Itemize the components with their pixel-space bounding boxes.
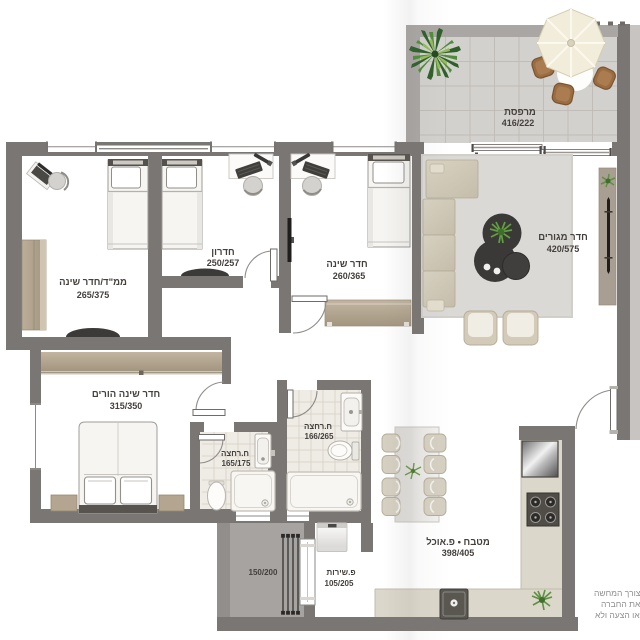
svg-text:150/200: 150/200 [249,568,278,577]
svg-text:315/350: 315/350 [110,401,143,411]
svg-text:ממ"ד/חדר שינה: ממ"ד/חדר שינה [59,277,127,288]
svg-text:105/205: 105/205 [325,579,354,588]
svg-text:צורך המחשה: צורך המחשה [594,588,640,598]
svg-text:ח.רחצה: ח.רחצה [304,422,332,431]
svg-text:166/265: 166/265 [305,432,334,441]
svg-text:416/222: 416/222 [502,118,535,128]
svg-text:חדרון: חדרון [211,247,234,258]
svg-text:מטבח • פ.אוכל: מטבח • פ.אוכל [426,537,490,548]
svg-text:או הצעה ולא: או הצעה ולא [595,610,640,620]
svg-text:165/175: 165/175 [222,459,251,468]
svg-text:398/405: 398/405 [442,548,475,558]
svg-text:חדר מגורים: חדר מגורים [538,232,588,243]
svg-text:את החברה: את החברה [601,599,640,609]
svg-text:250/257: 250/257 [207,258,240,268]
svg-text:מרפסת: מרפסת [504,107,536,118]
svg-text:420/575: 420/575 [547,244,580,254]
svg-text:פ.שירות: פ.שירות [326,568,355,577]
svg-text:חדר שינה הורים: חדר שינה הורים [92,389,160,400]
svg-text:ח.רחצה: ח.רחצה [221,449,249,458]
svg-text:260/365: 260/365 [333,271,366,281]
svg-text:חדר שינה: חדר שינה [326,259,367,270]
svg-text:265/375: 265/375 [77,290,110,300]
